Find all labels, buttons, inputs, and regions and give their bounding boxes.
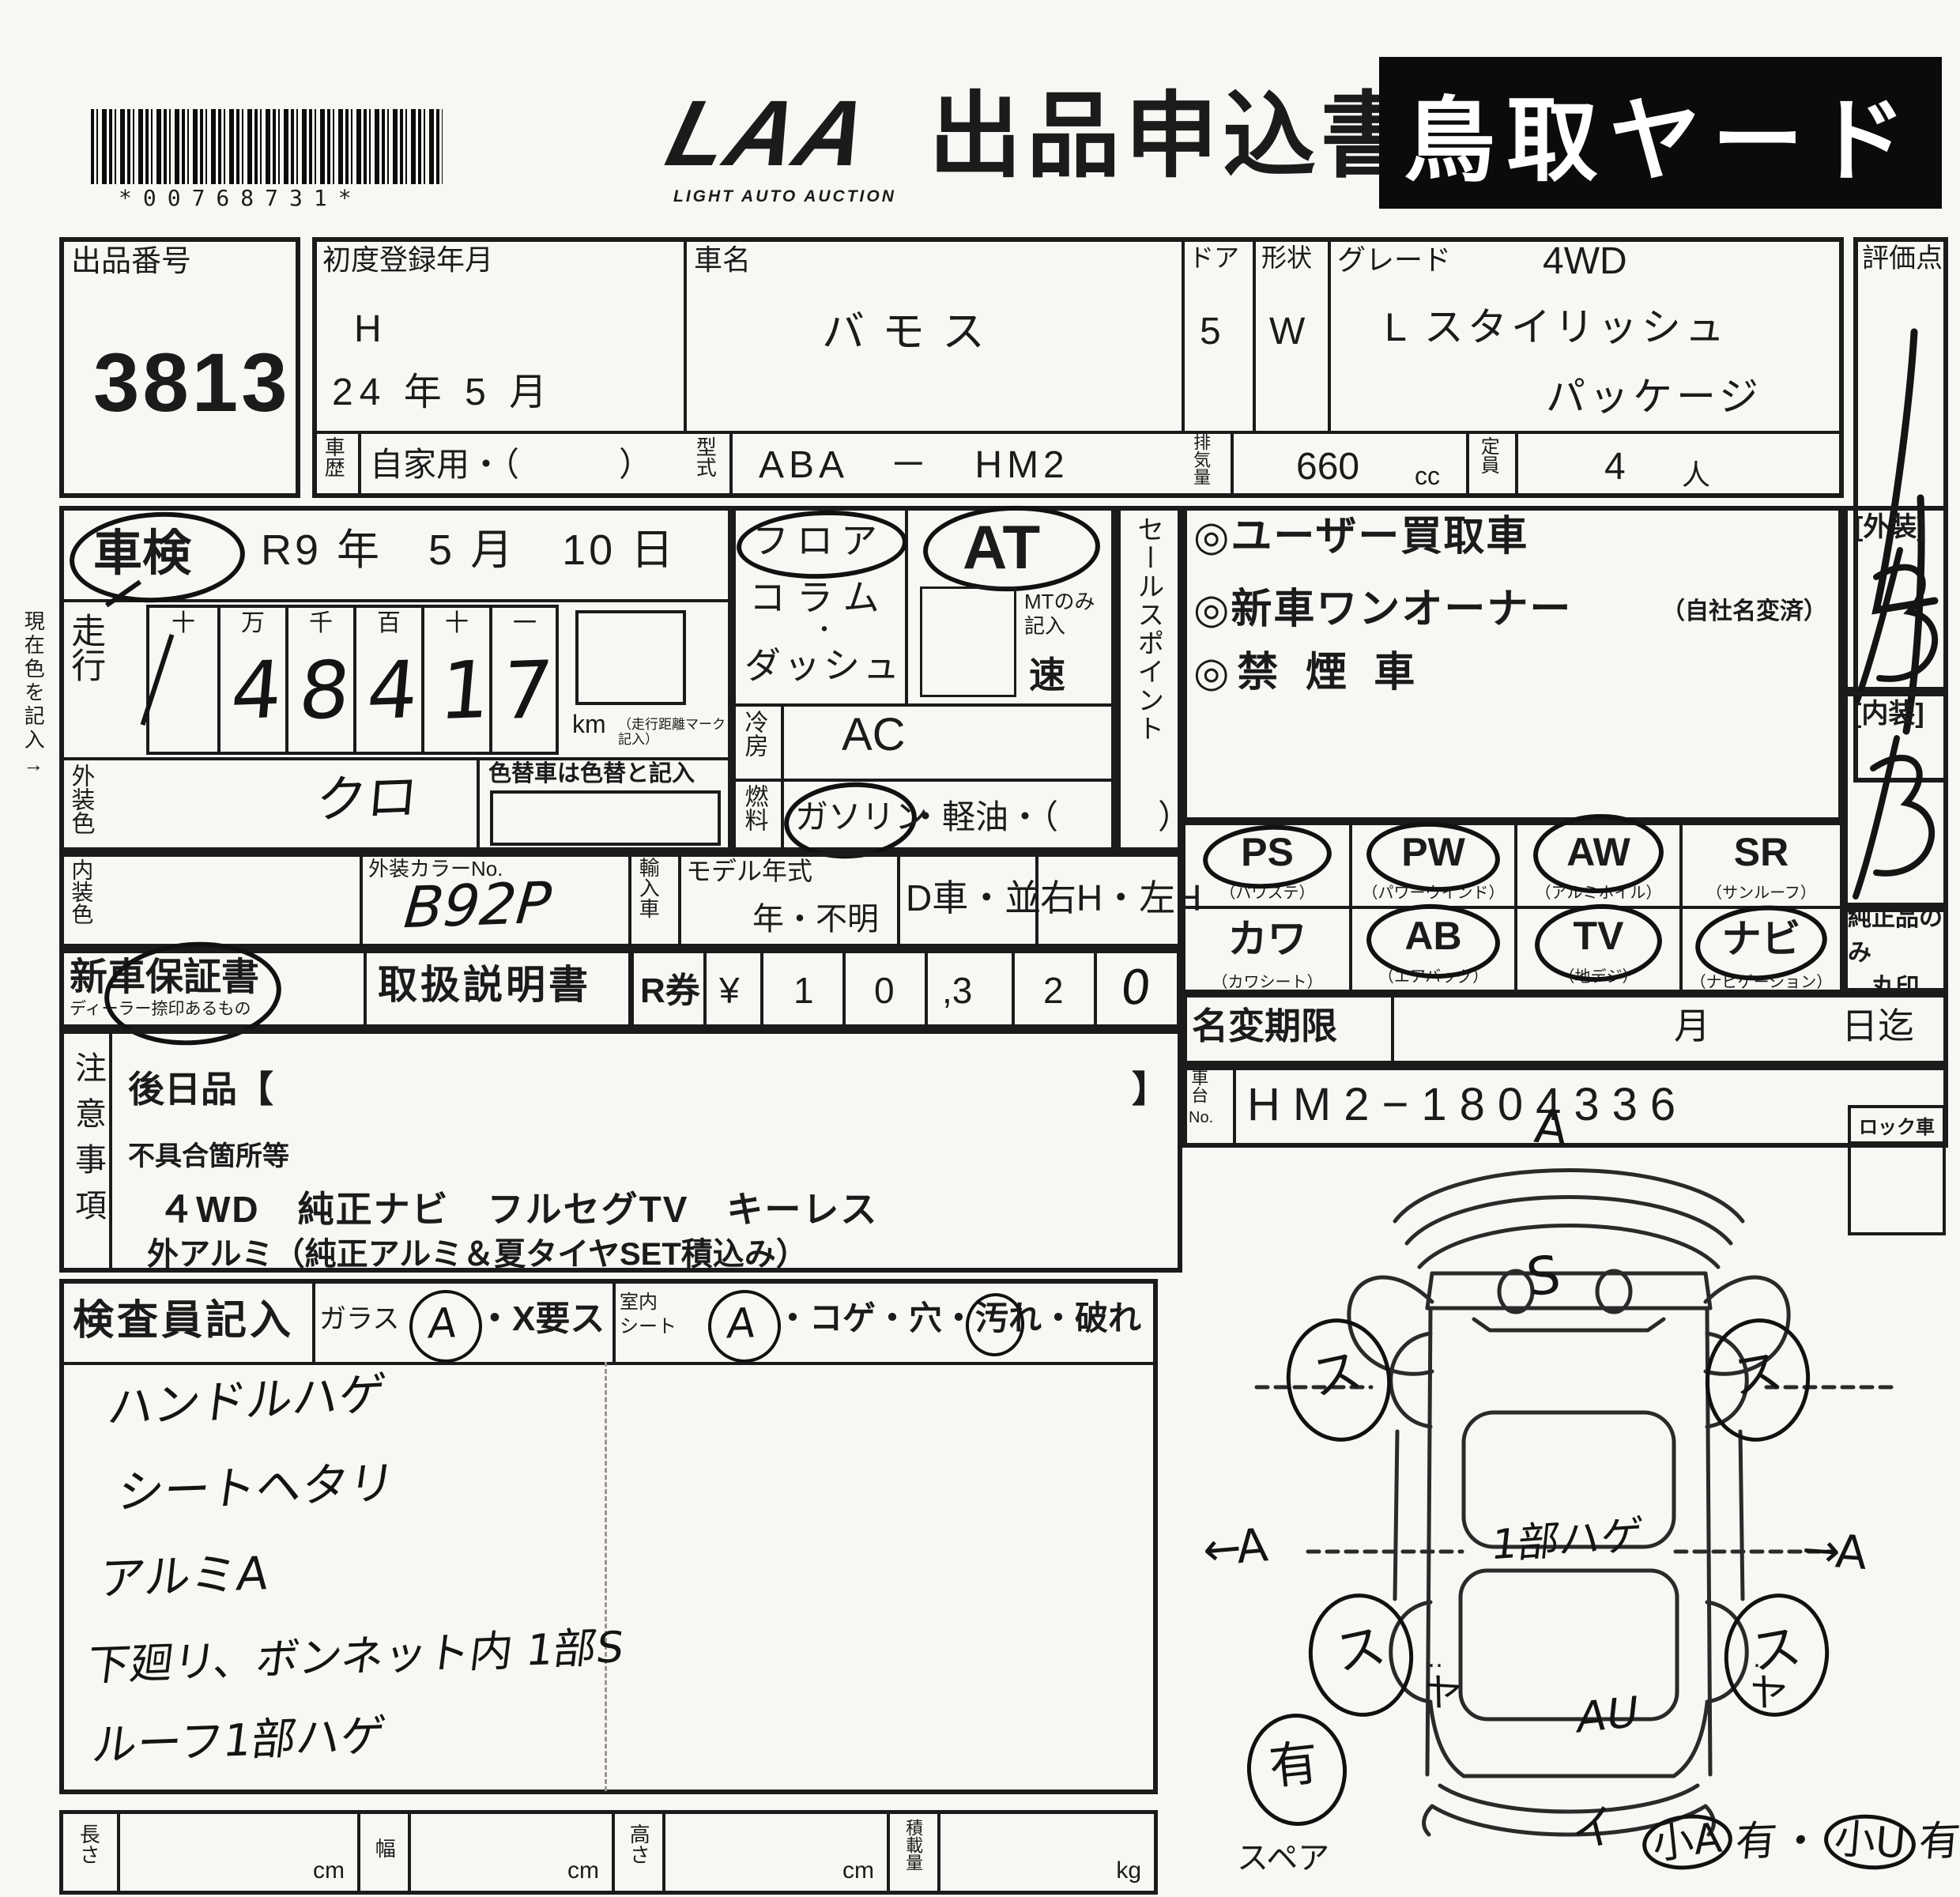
inspector-note: アルミA xyxy=(96,1549,270,1603)
tv-circle xyxy=(1533,901,1664,985)
name-change-label: 名変期限 xyxy=(1192,1007,1337,1045)
genuine-parts-box: 純正品のみ 丸印 xyxy=(1843,907,1948,993)
sales-point-3: ◎禁 煙 車 xyxy=(1193,651,1423,695)
mark-wheel-fr: ス xyxy=(1728,1344,1785,1404)
spare-label: スペア xyxy=(1237,1842,1329,1875)
handle-options: 右H・左H xyxy=(1040,879,1201,917)
equip-kawa: カワ（カワシート） xyxy=(1185,909,1349,990)
form-title: 出品申込書 xyxy=(929,89,1419,187)
score-label: 評価点 xyxy=(1862,245,1943,273)
model-year-value: 年・不明 xyxy=(752,903,879,936)
mark-spare-present: 有 xyxy=(1267,1737,1321,1793)
chassis-label: 車台No. xyxy=(1189,1069,1230,1126)
glass-mark: A xyxy=(427,1302,459,1346)
yard-name: 鳥取ヤード xyxy=(1404,66,1917,199)
sales-point-1: ◎ユーザー買取車 xyxy=(1193,515,1528,559)
lot-number-value: 3813 xyxy=(93,340,291,427)
exterior-color-label: 外装色 xyxy=(68,764,93,835)
measurement-row: 長さ cm 幅 cm 高さ cm 積載量 kg xyxy=(59,1810,1158,1895)
cooling-value: AC xyxy=(842,711,906,760)
fuel-gasoline: ガソリン xyxy=(795,800,928,835)
barcode xyxy=(91,109,443,184)
displacement-unit: cc xyxy=(1415,463,1440,490)
mt-speed-box xyxy=(920,586,1016,697)
margin-note: 現在色を記入→ xyxy=(22,610,43,779)
grade-line2: パッケージ xyxy=(1546,376,1762,418)
mark-small-a: 小A xyxy=(1640,1810,1735,1873)
mileage-grid: 十 万4 千8 百4 十1 一7 xyxy=(146,605,559,755)
mark-side-left: ←A xyxy=(1200,1522,1265,1575)
mt-note: MTのみ記入 xyxy=(1024,590,1111,639)
lot-number-label: 出品番号 xyxy=(71,247,191,278)
mark-wheel-fl: ス xyxy=(1307,1344,1366,1405)
interior-color-label: 内装色 xyxy=(70,858,92,925)
mark-center: 1部ハゲ xyxy=(1489,1514,1645,1567)
import-car-label: 輸入車 xyxy=(637,857,658,918)
yard-banner: 鳥取ヤード xyxy=(1379,57,1942,209)
length-unit: cm xyxy=(313,1858,345,1884)
recycle-label: R券 xyxy=(640,973,700,1009)
model-code-value: ABA － HM2 xyxy=(759,446,1069,485)
genuine-line1: 純正品のみ xyxy=(1848,898,1943,967)
mileage-digit: 7 xyxy=(498,648,556,733)
shift-column: コラム xyxy=(749,579,891,617)
width-unit: cm xyxy=(567,1858,599,1884)
mark-panel-left-dots: ‥ xyxy=(1427,1647,1443,1673)
defects-label: 不具合箇所等 xyxy=(128,1143,289,1171)
inspection-value: R9 年 5 月 10 日 xyxy=(261,528,677,573)
at-value: AT xyxy=(963,515,1040,580)
inspection-label: 車検 xyxy=(93,528,191,579)
mileage-digit: 8 xyxy=(296,648,353,733)
displacement-label: 排気量 xyxy=(1192,433,1210,485)
seat-options: ・コゲ・穴・汚れ・破れ xyxy=(776,1301,1141,1336)
equipment-row-1: PS（パワステ） PW（パワーウインド） AW（アルミホイル） SR（サンルーフ… xyxy=(1182,822,1843,909)
exterior-color-value: クロ xyxy=(314,771,420,828)
first-registration-era: H xyxy=(354,310,382,349)
name-change-until: 日迄 xyxy=(1841,1007,1914,1045)
color-no-value: B92P xyxy=(401,873,553,938)
recycle-digit: 2 xyxy=(1043,971,1064,1009)
sales-point-vertical-label: セールスポイント xyxy=(1133,515,1162,743)
inspector-label: 検査員記入 xyxy=(73,1299,294,1343)
mark-panel-right-dots: ‥ xyxy=(1753,1647,1769,1673)
mark-small-u: 小U xyxy=(1822,1811,1918,1872)
mileage-digit: 4 xyxy=(228,648,285,733)
height-label: 高さ xyxy=(628,1823,649,1865)
equip-ps: PS（パワステ） xyxy=(1185,825,1349,906)
cautions-line2: 外アルミ（純正アルミ＆夏タイヤSET積込み） xyxy=(147,1238,808,1271)
recycle-digit: 1 xyxy=(793,971,814,1009)
recycle-hand-digit: 0 xyxy=(1118,963,1153,1013)
recycle-yen: ¥ xyxy=(719,971,740,1009)
capacity-unit: 人 xyxy=(1682,460,1710,490)
inspector-divider-dashed xyxy=(605,1362,607,1791)
recycle-ticket-row: R券 ¥ 1 0 ,3 2 0 xyxy=(628,947,1182,1031)
mileage-mark-box xyxy=(575,610,686,705)
equip-pw: PW（パワーウインド） xyxy=(1349,825,1514,906)
cautions-line1: ４WD 純正ナビ フルセグTV キーレス xyxy=(158,1190,878,1228)
interior-grade-value xyxy=(1848,734,1943,899)
seat-label: 室内シート xyxy=(620,1290,714,1339)
grade-drive: 4WD xyxy=(1543,242,1627,281)
exterior-grade-value xyxy=(1849,545,1944,703)
load-unit: kg xyxy=(1116,1858,1141,1884)
later-items-label: 後日品【 xyxy=(128,1070,273,1108)
mark-rear-window: AU xyxy=(1574,1690,1641,1740)
cautions-vertical-label: 注意事項 xyxy=(71,1051,104,1235)
manual-label: 取扱説明書 xyxy=(378,964,591,1006)
color-change-note: 色替車は色替と記入 xyxy=(488,762,695,786)
dealer-car-options: D車・並 xyxy=(906,879,1041,917)
inspector-note: シートヘタリ xyxy=(115,1459,398,1517)
capacity-value: 4 xyxy=(1604,447,1626,487)
displacement-value: 660 xyxy=(1296,447,1359,487)
name-change-month: 月 xyxy=(1674,1007,1710,1045)
first-registration-label: 初度登録年月 xyxy=(322,245,493,275)
later-items-close: 】 xyxy=(1132,1070,1168,1108)
model-year-label: モデル年式 xyxy=(686,858,812,885)
shift-dash: ダッシュ xyxy=(744,647,903,685)
shape-value: W xyxy=(1269,312,1305,352)
shift-floor: フロア xyxy=(752,522,885,560)
recycle-digit: ,3 xyxy=(942,971,972,1009)
history-value: 自家用・（ ） xyxy=(370,447,652,482)
sales-point-2: ◎新車ワンオーナー xyxy=(1193,588,1572,632)
height-unit: cm xyxy=(842,1858,874,1884)
model-code-label: 型式 xyxy=(694,436,715,477)
doors-value: 5 xyxy=(1200,312,1221,352)
first-registration-date: 24 年 5 月 xyxy=(332,373,553,413)
interior-grade-label: [内装] xyxy=(1853,700,1924,729)
laa-logo-subtitle: LIGHT AUTO AUCTION xyxy=(673,188,896,206)
doors-label: ドア xyxy=(1189,245,1239,272)
cooling-label: 冷房 xyxy=(741,710,767,757)
shape-label: 形状 xyxy=(1261,245,1312,272)
grade-line1: L スタイリッシュ xyxy=(1385,307,1728,349)
mt-speed-label: 速 xyxy=(1029,656,1065,694)
glass-options: ・X要ス xyxy=(477,1301,605,1337)
mark-wheel-rl: ス xyxy=(1331,1619,1389,1680)
capacity-label: 定員 xyxy=(1478,436,1498,474)
mileage-unit-note: （走行距離マーク記入） xyxy=(618,718,729,747)
equipment-row-2: カワ（カワシート） AB（エアバッグ） TV（地デジ） ナビ（ナビゲーション） xyxy=(1182,906,1843,993)
auction-sheet: *00768731* LAA LIGHT AUTO AUCTION 出品申込書 … xyxy=(0,0,1960,1897)
equip-ab: AB（エアバッグ） xyxy=(1349,909,1514,990)
inspector-note: ルーフ1部ハゲ xyxy=(89,1714,387,1771)
mileage-unit: km xyxy=(572,711,606,738)
equip-navi: ナビ（ナビゲーション） xyxy=(1679,909,1840,990)
load-label: 積載量 xyxy=(904,1819,922,1871)
barcode-text: *00768731* xyxy=(119,187,363,209)
bottom-right-marks: 小A 有 ・ 小U 有 xyxy=(1642,1815,1960,1869)
recycle-digit: 0 xyxy=(874,971,895,1009)
exterior-grade-label: [外装] xyxy=(1854,514,1926,542)
mark-side-right: →A xyxy=(1800,1525,1864,1577)
width-label: 幅 xyxy=(373,1838,394,1858)
mileage-label: 走行 xyxy=(66,613,103,682)
length-label: 長さ xyxy=(77,1823,99,1865)
mileage-digit: 4 xyxy=(364,648,421,733)
shift-dot: ・ xyxy=(812,618,836,643)
sales-point-2-note: （自社名変済） xyxy=(1661,599,1827,624)
mark-front-top: A xyxy=(1532,1102,1570,1156)
equip-tv: TV（地デジ） xyxy=(1514,909,1679,990)
equip-aw: AW（アルミホイル） xyxy=(1514,825,1679,906)
seat-mark: A xyxy=(726,1302,758,1346)
grade-label: グレード xyxy=(1337,245,1451,275)
equip-sr: SR（サンルーフ） xyxy=(1679,825,1840,906)
history-label: 車歴 xyxy=(322,436,344,477)
fuel-label: 燃料 xyxy=(741,784,767,832)
mileage-digit: 1 xyxy=(436,648,494,733)
color-change-box xyxy=(490,790,721,846)
glass-label: ガラス xyxy=(319,1306,399,1334)
car-name-value: バモス xyxy=(822,310,1002,355)
laa-logo: LAA xyxy=(658,85,879,183)
car-name-label: 車名 xyxy=(694,245,751,275)
